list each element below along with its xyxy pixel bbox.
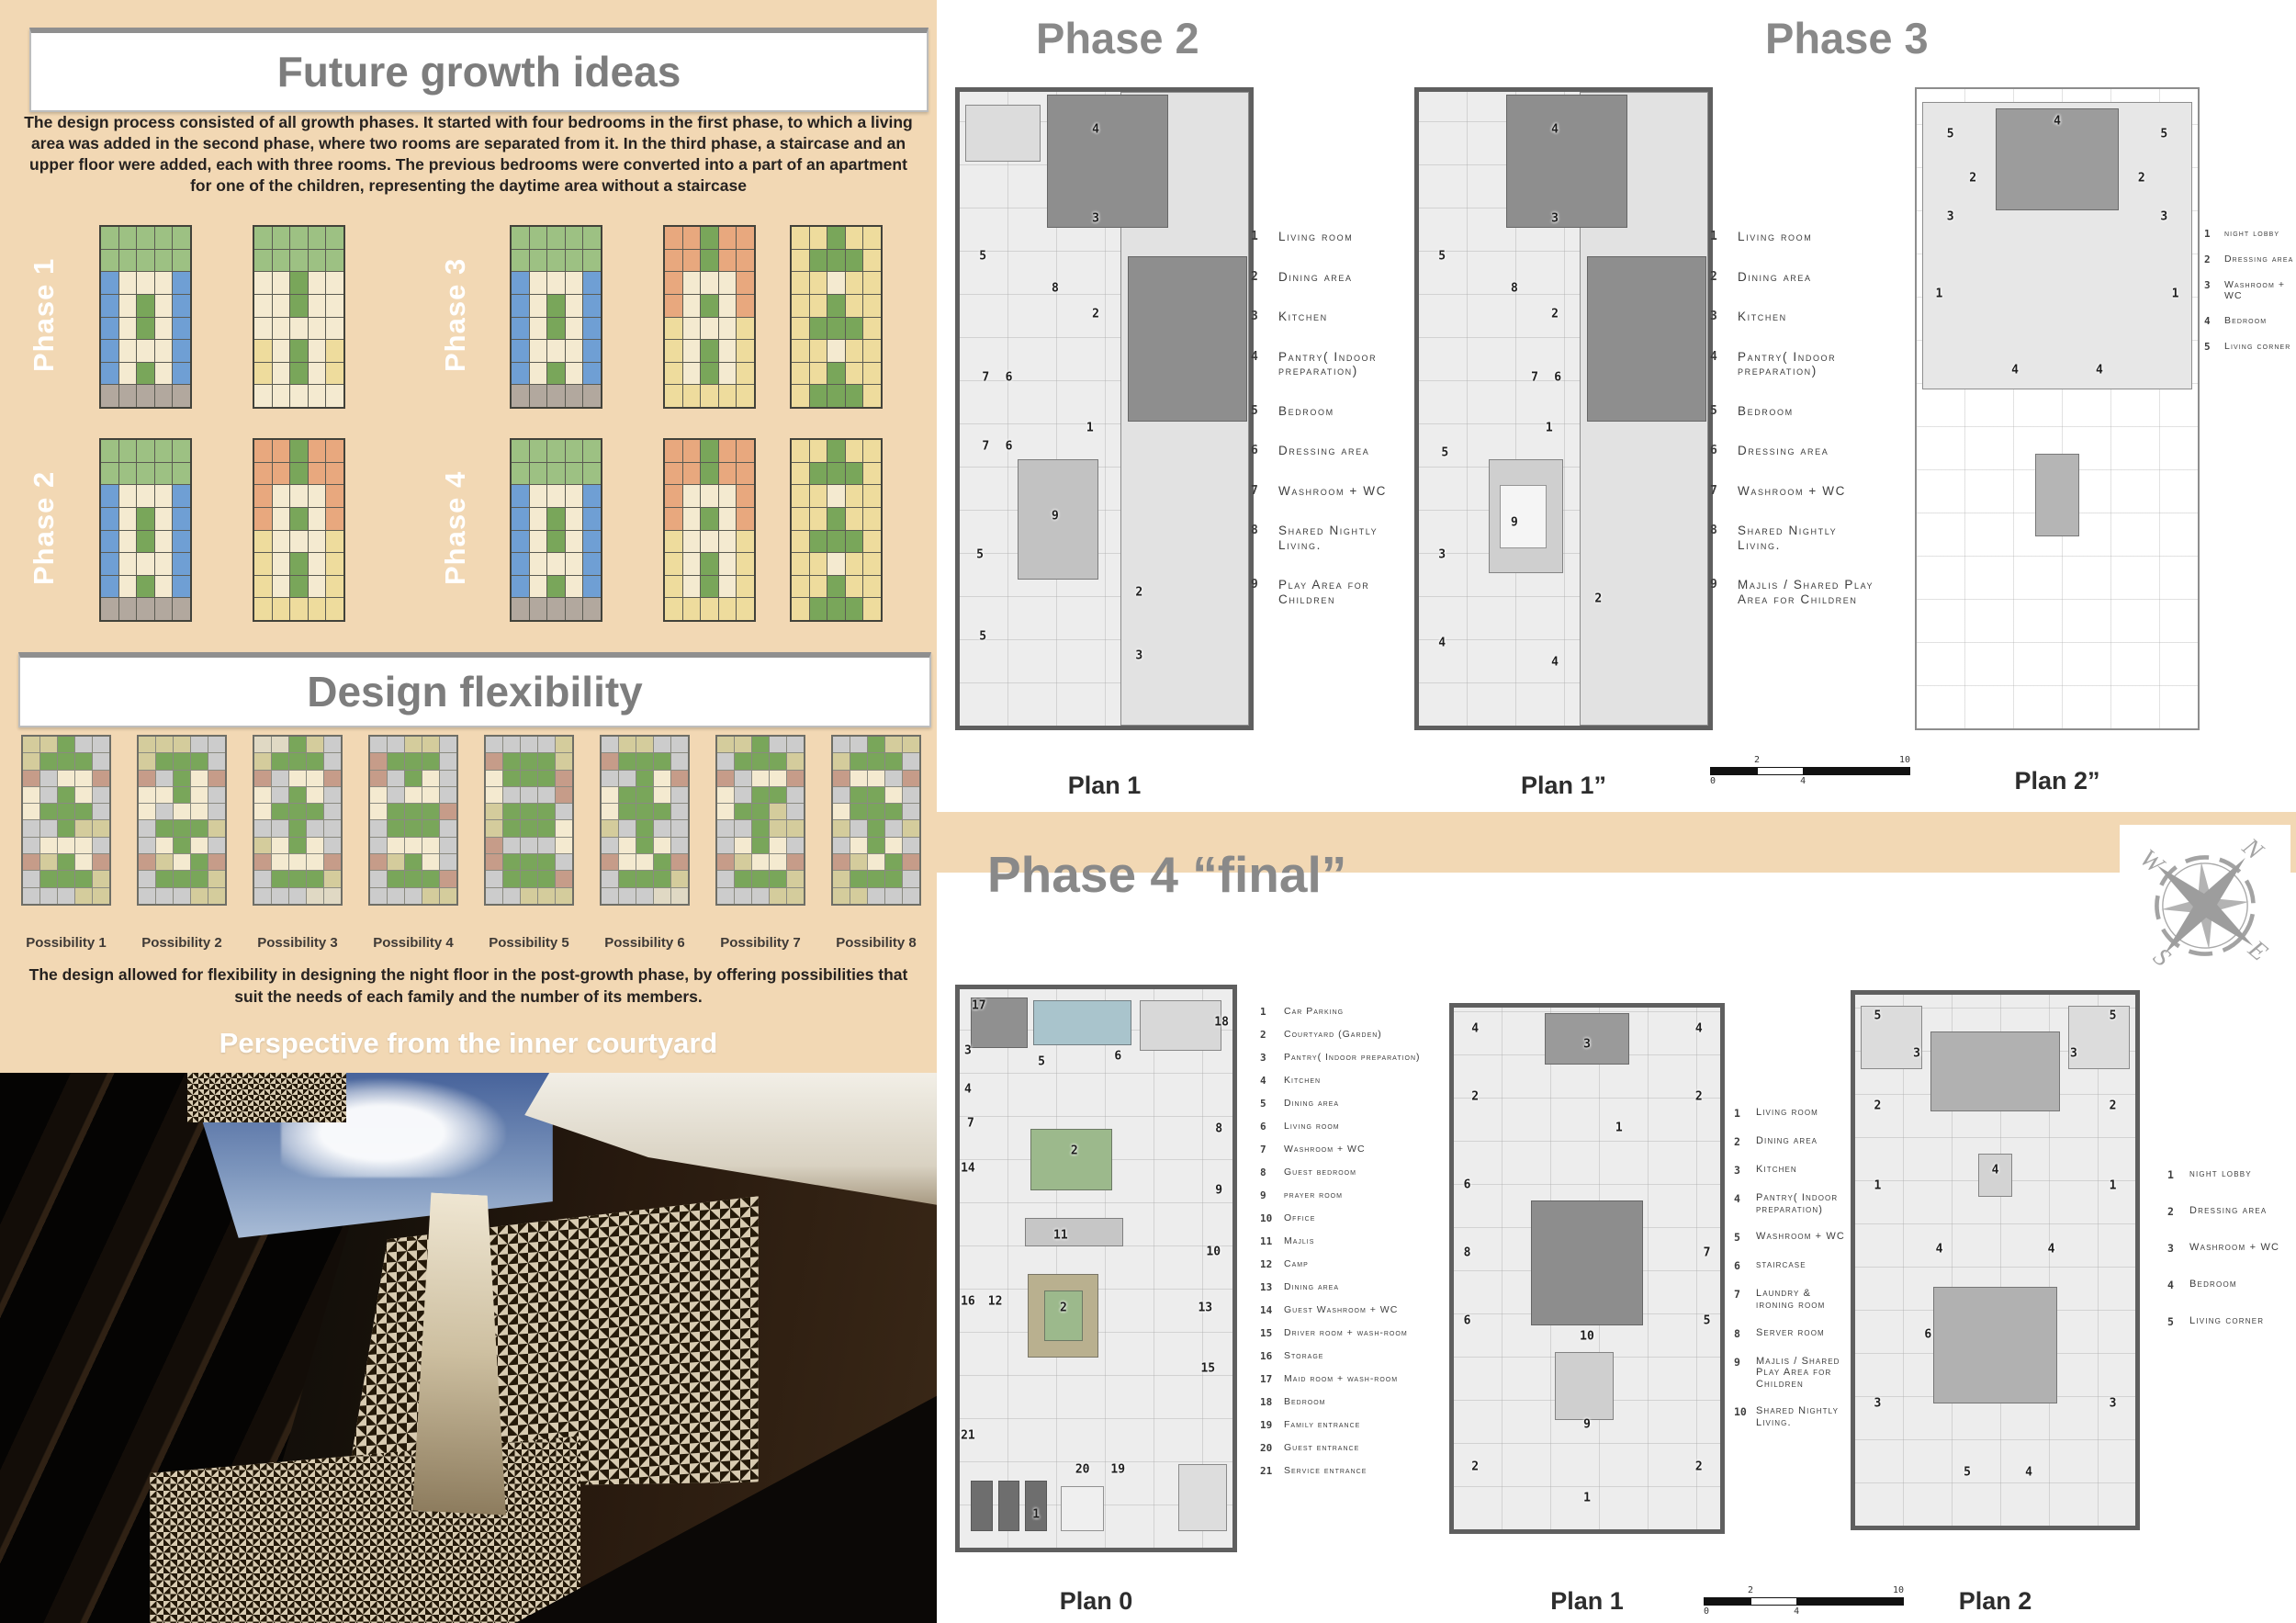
diagram-cell xyxy=(701,440,718,462)
diagram-cell xyxy=(254,888,271,904)
diagram-cell xyxy=(671,804,688,819)
diagram-cell xyxy=(885,804,902,819)
diagram-cell xyxy=(521,753,537,769)
diagram-cell xyxy=(326,318,343,340)
plan-block xyxy=(1044,1291,1083,1341)
diagram-cell xyxy=(827,485,845,507)
diagram-cell xyxy=(566,463,583,485)
diagram-cell xyxy=(309,363,326,385)
diagram-cell xyxy=(846,485,863,507)
mashrabiya-screen-top xyxy=(187,1073,346,1122)
legend-label: Bedroom xyxy=(1738,404,1794,419)
diagram-cell xyxy=(254,753,271,769)
diagram-cell xyxy=(155,227,173,249)
legend-label: Washroom + WC xyxy=(1738,484,1846,499)
diagram-cell xyxy=(191,838,208,853)
plan-block xyxy=(1933,1287,2056,1403)
diagram-cell xyxy=(173,508,190,530)
diagram-cell xyxy=(119,363,137,385)
floor-plan-phase4-plan0: 1731865471428911101612213152120191 xyxy=(955,985,1237,1552)
diagram-cell xyxy=(370,888,387,904)
diagram-cell xyxy=(309,227,326,249)
legend-label: Service entrance xyxy=(1284,1465,1367,1476)
legend-label: Washroom + WC xyxy=(1756,1231,1845,1243)
diagram-cell xyxy=(324,787,341,803)
diagram-cell xyxy=(717,871,734,886)
diagram-cell xyxy=(683,295,701,317)
diagram-cell xyxy=(792,508,809,530)
diagram-cell xyxy=(173,295,190,317)
plan-block xyxy=(1025,1481,1047,1531)
diagram-cell xyxy=(273,227,290,249)
diagram-cell xyxy=(636,737,653,752)
diagram-cell xyxy=(868,737,884,752)
legend-number: 1 xyxy=(1710,230,1738,243)
diagram-cell xyxy=(583,295,601,317)
possibility-4: Possibility 4 xyxy=(367,735,459,951)
diagram-cell xyxy=(846,463,863,485)
diagram-cell xyxy=(191,820,208,836)
diagram-cell xyxy=(530,463,547,485)
diagram-cell xyxy=(717,737,734,752)
phase-2-label: Phase 2 xyxy=(17,438,72,618)
diagram-cell xyxy=(93,753,109,769)
diagram-cell xyxy=(422,804,439,819)
diagram-cell xyxy=(101,272,118,294)
diagram-cell xyxy=(486,871,502,886)
legend-label: Dining area xyxy=(1756,1135,1818,1147)
diagram-cell xyxy=(101,227,118,249)
diagram-cell xyxy=(290,272,308,294)
diagram-cell xyxy=(119,272,137,294)
diagram-cell xyxy=(254,272,272,294)
diagram-cell xyxy=(850,787,867,803)
room-number: 5 xyxy=(1947,127,1954,141)
diagram-cell xyxy=(752,854,769,870)
diagram-cell xyxy=(40,871,57,886)
diagram-cell xyxy=(583,553,601,575)
diagram-cell xyxy=(752,888,769,904)
diagram-cell xyxy=(289,838,306,853)
diagram-cell xyxy=(307,838,323,853)
plan-block xyxy=(1500,485,1546,548)
diagram-cell xyxy=(602,888,618,904)
room-number: 3 xyxy=(1874,1397,1881,1411)
diagram-cell xyxy=(752,838,769,853)
legend-item: 3Washroom + WC xyxy=(2167,1242,2287,1255)
diagram-cell xyxy=(422,787,439,803)
diagram-cell xyxy=(810,340,827,362)
legend-label: Bedroom xyxy=(2224,315,2267,326)
diagram-cell xyxy=(717,753,734,769)
diagram-cell xyxy=(547,385,565,407)
scale-bar-top: 2 10 0 4 xyxy=(1710,755,1910,786)
room-number: 9 xyxy=(1215,1183,1222,1197)
diagram-cell xyxy=(583,508,601,530)
diagram-cell xyxy=(119,463,137,485)
diagram-cell xyxy=(792,440,809,462)
diagram-cell xyxy=(40,804,57,819)
diagram-cell xyxy=(440,787,456,803)
legend-item: 7Washroom + WC xyxy=(1251,484,1414,499)
diagram-cell xyxy=(101,385,118,407)
legend-label: Laundry & ironing room xyxy=(1756,1288,1846,1311)
diagram-cell xyxy=(810,531,827,553)
plan-block xyxy=(1930,1031,2059,1111)
diagram-cell xyxy=(137,463,154,485)
legend-label: Dressing area xyxy=(2189,1205,2267,1217)
diagram-cell xyxy=(846,227,863,249)
phase-4-diagram-2 xyxy=(663,438,756,622)
room-number: 10 xyxy=(1580,1329,1594,1343)
phase-4-heading: Phase 4 “final” xyxy=(987,845,1346,904)
legend-item: 9Play Area for Children xyxy=(1251,578,1414,606)
diagram-cell xyxy=(770,820,786,836)
phase3-night-legend: 1night lobby2Dressing area3Washroom + WC… xyxy=(2204,228,2294,366)
diagram-cell xyxy=(863,598,881,620)
diagram-cell xyxy=(75,804,92,819)
diagram-cell xyxy=(58,871,74,886)
diagram-cell xyxy=(792,272,809,294)
plan-block xyxy=(1061,1486,1105,1531)
legend-label: Shared Nightly Living. xyxy=(1756,1405,1846,1428)
diagram-cell xyxy=(792,250,809,272)
room-number: 3 xyxy=(2160,210,2167,224)
room-number: 4 xyxy=(1471,1021,1479,1035)
diagram-cell xyxy=(521,737,537,752)
legend-label: Washroom + WC xyxy=(2224,279,2294,301)
legend-item: 7Washroom + WC xyxy=(1710,484,1875,499)
diagram-cell xyxy=(254,340,272,362)
diagram-cell xyxy=(665,508,682,530)
diagram-cell xyxy=(503,804,520,819)
room-number: 3 xyxy=(1135,649,1142,663)
diagram-cell xyxy=(846,553,863,575)
diagram-cell xyxy=(173,318,190,340)
diagram-cell xyxy=(701,227,718,249)
legend-item: 2Courtyard (Garden) xyxy=(1260,1029,1436,1041)
diagram-cell xyxy=(665,576,682,598)
legend-label: Play Area for Children xyxy=(1278,578,1414,606)
legend-label: Dressing area xyxy=(1738,444,1829,458)
diagram-cell xyxy=(289,871,306,886)
room-number: 2 xyxy=(1471,1460,1479,1473)
diagram-cell xyxy=(137,576,154,598)
room-number: 4 xyxy=(1092,123,1099,137)
diagram-cell xyxy=(405,771,422,786)
diagram-cell xyxy=(422,838,439,853)
diagram-cell xyxy=(93,888,109,904)
diagram-cell xyxy=(827,598,845,620)
room-number: 7 xyxy=(967,1116,974,1130)
phase4-plan1-legend: 1Living room2Dining area3Kitchen4Pantry(… xyxy=(1734,1107,1846,1445)
diagram-cell xyxy=(155,463,173,485)
diagram-cell xyxy=(602,737,618,752)
diagram-cell xyxy=(654,804,670,819)
diagram-cell xyxy=(40,854,57,870)
room-number: 2 xyxy=(2138,172,2145,186)
diagram-cell xyxy=(583,272,601,294)
diagram-cell xyxy=(137,385,154,407)
diagram-cell xyxy=(530,272,547,294)
legend-item: 8Server room xyxy=(1734,1327,1846,1340)
diagram-cell xyxy=(309,531,326,553)
diagram-cell xyxy=(75,838,92,853)
phase4-plan0-legend: 1Car Parking2Courtyard (Garden)3Pantry( … xyxy=(1260,1006,1436,1488)
diagram-cell xyxy=(440,753,456,769)
room-number: 15 xyxy=(1200,1362,1215,1376)
room-number: 3 xyxy=(1551,212,1559,226)
diagram-cell xyxy=(324,804,341,819)
diagram-cell xyxy=(566,553,583,575)
diagram-cell xyxy=(850,871,867,886)
diagram-cell xyxy=(521,854,537,870)
diagram-cell xyxy=(254,385,272,407)
diagram-cell xyxy=(863,485,881,507)
diagram-cell xyxy=(566,227,583,249)
room-number: 4 xyxy=(1438,637,1446,650)
legend-item: 1Car Parking xyxy=(1260,1006,1436,1018)
diagram-cell xyxy=(290,318,308,340)
legend-item: 2Dressing area xyxy=(2167,1205,2287,1218)
diagram-cell xyxy=(717,820,734,836)
room-number: 5 xyxy=(1704,1313,1711,1327)
legend-label: Kitchen xyxy=(1756,1164,1797,1176)
diagram-cell xyxy=(566,250,583,272)
diagram-cell xyxy=(440,820,456,836)
diagram-cell xyxy=(155,485,173,507)
diagram-cell xyxy=(273,318,290,340)
diagram-cell xyxy=(254,787,271,803)
diagram-cell xyxy=(602,787,618,803)
diagram-cell xyxy=(636,888,653,904)
diagram-cell xyxy=(792,576,809,598)
diagram-cell xyxy=(654,888,670,904)
diagram-cell xyxy=(566,576,583,598)
plan-block xyxy=(965,105,1041,162)
floor-plan-phase4-plan2: 5533221144463354 xyxy=(1851,990,2140,1530)
diagram-cell xyxy=(719,553,737,575)
diagram-cell xyxy=(155,598,173,620)
room-number: 5 xyxy=(2160,127,2167,141)
diagram-cell xyxy=(208,820,225,836)
legend-number: 9 xyxy=(1734,1356,1756,1369)
diagram-cell xyxy=(846,385,863,407)
diagram-cell xyxy=(787,771,804,786)
legend-number: 2 xyxy=(1710,270,1738,284)
possibility-1-grid xyxy=(21,735,111,906)
diagram-cell xyxy=(683,553,701,575)
legend-number: 21 xyxy=(1260,1465,1284,1477)
diagram-cell xyxy=(512,485,529,507)
diagram-cell xyxy=(486,820,502,836)
diagram-cell xyxy=(583,363,601,385)
diagram-cell xyxy=(665,553,682,575)
diagram-cell xyxy=(273,340,290,362)
legend-item: 21Service entrance xyxy=(1260,1465,1436,1477)
diagram-cell xyxy=(701,553,718,575)
legend-number: 5 xyxy=(1260,1098,1284,1110)
diagram-cell xyxy=(309,508,326,530)
diagram-cell xyxy=(370,838,387,853)
diagram-cell xyxy=(137,485,154,507)
diagram-cell xyxy=(547,598,565,620)
diagram-cell xyxy=(602,804,618,819)
legend-item: 8Shared Nightly Living. xyxy=(1710,524,1875,552)
diagram-cell xyxy=(58,753,74,769)
diagram-cell xyxy=(101,463,118,485)
diagram-cell xyxy=(155,508,173,530)
diagram-cell xyxy=(75,787,92,803)
compass-n: N xyxy=(2237,831,2270,865)
legend-number: 4 xyxy=(1710,350,1738,364)
diagram-cell xyxy=(173,272,190,294)
legend-item: 6Dressing area xyxy=(1251,444,1414,458)
diagram-cell xyxy=(719,440,737,462)
diagram-cell xyxy=(547,272,565,294)
diagram-cell xyxy=(671,854,688,870)
diagram-cell xyxy=(254,250,272,272)
diagram-cell xyxy=(422,753,439,769)
diagram-cell xyxy=(208,787,225,803)
diagram-cell xyxy=(173,440,190,462)
diagram-cell xyxy=(665,340,682,362)
room-number: 1 xyxy=(1874,1179,1881,1193)
plan-block xyxy=(1030,1129,1112,1190)
scale-tick-10: 10 xyxy=(1899,755,1910,765)
diagram-cell xyxy=(671,871,688,886)
diagram-cell xyxy=(326,363,343,385)
diagram-cell xyxy=(787,871,804,886)
room-number: 5 xyxy=(979,630,986,644)
legend-number: 20 xyxy=(1260,1442,1284,1454)
plan-block xyxy=(1555,1352,1614,1420)
possibility-6: Possibility 6 xyxy=(599,735,691,951)
legend-number: 16 xyxy=(1260,1350,1284,1362)
diagram-cell xyxy=(405,871,422,886)
diagram-cell xyxy=(583,318,601,340)
diagram-cell xyxy=(119,385,137,407)
diagram-cell xyxy=(530,385,547,407)
diagram-cell xyxy=(289,737,306,752)
legend-number: 9 xyxy=(1710,578,1738,592)
legend-item: 1night lobby xyxy=(2167,1168,2287,1181)
diagram-cell xyxy=(683,440,701,462)
diagram-cell xyxy=(273,272,290,294)
diagram-cell xyxy=(530,250,547,272)
diagram-cell xyxy=(119,598,137,620)
diagram-cell xyxy=(326,340,343,362)
diagram-cell xyxy=(440,737,456,752)
compass-icon: N E S W xyxy=(2124,829,2286,982)
diagram-cell xyxy=(792,318,809,340)
diagram-cell xyxy=(512,440,529,462)
possibility-5-caption: Possibility 5 xyxy=(483,935,575,951)
diagram-cell xyxy=(273,363,290,385)
diagram-cell xyxy=(23,804,39,819)
plan-block xyxy=(2035,454,2080,536)
legend-label: Guest entrance xyxy=(1284,1442,1359,1453)
diagram-cell xyxy=(290,250,308,272)
diagram-cell xyxy=(903,820,919,836)
diagram-cell xyxy=(530,340,547,362)
diagram-cell xyxy=(173,227,190,249)
diagram-cell xyxy=(101,250,118,272)
room-number: 8 xyxy=(1511,281,1518,295)
legend-number: 4 xyxy=(1260,1075,1284,1087)
diagram-cell xyxy=(683,340,701,362)
room-number: 2 xyxy=(1092,307,1099,321)
diagram-cell xyxy=(324,737,341,752)
diagram-cell xyxy=(868,838,884,853)
legend-number: 8 xyxy=(1734,1327,1756,1340)
diagram-cell xyxy=(75,820,92,836)
diagram-cell xyxy=(850,854,867,870)
room-number: 3 xyxy=(2070,1046,2077,1060)
legend-number: 6 xyxy=(1710,444,1738,457)
phase-3-diagram-2 xyxy=(663,225,756,409)
diagram-cell xyxy=(547,553,565,575)
room-number: 2 xyxy=(1969,172,1976,186)
diagram-cell xyxy=(289,771,306,786)
diagram-cell xyxy=(23,820,39,836)
legend-label: Dining area xyxy=(1284,1098,1339,1109)
legend-label: Living room xyxy=(1278,230,1353,244)
plan-block xyxy=(1531,1200,1643,1325)
legend-number: 5 xyxy=(1734,1231,1756,1244)
legend-item: 2Dining area xyxy=(1251,270,1414,285)
legend-item: 4Kitchen xyxy=(1260,1075,1436,1087)
diagram-cell xyxy=(101,553,118,575)
diagram-cell xyxy=(717,771,734,786)
diagram-cell xyxy=(440,854,456,870)
legend-label: Kitchen xyxy=(1278,310,1328,324)
diagram-cell xyxy=(863,250,881,272)
diagram-cell xyxy=(173,363,190,385)
diagram-cell xyxy=(547,318,565,340)
legend-number: 3 xyxy=(2167,1242,2189,1255)
diagram-cell xyxy=(735,787,751,803)
courtyard-photo xyxy=(0,1073,937,1623)
possibility-6-grid xyxy=(600,735,690,906)
diagram-cell xyxy=(512,250,529,272)
diagram-cell xyxy=(737,463,754,485)
diagram-cell xyxy=(683,531,701,553)
possibility-8: Possibility 8 xyxy=(830,735,922,951)
diagram-cell xyxy=(119,340,137,362)
phase-3-label: Phase 3 xyxy=(428,225,483,405)
diagram-cell xyxy=(290,531,308,553)
diagram-cell xyxy=(787,787,804,803)
legend-item: 5Bedroom xyxy=(1251,404,1414,419)
legend-item: 1Living room xyxy=(1734,1107,1846,1120)
legend-number: 9 xyxy=(1251,578,1278,592)
diagram-cell xyxy=(903,854,919,870)
diagram-cell xyxy=(885,888,902,904)
diagram-cell xyxy=(827,553,845,575)
diagram-cell xyxy=(273,508,290,530)
diagram-cell xyxy=(254,227,272,249)
diagram-cell xyxy=(846,250,863,272)
plan-block xyxy=(1033,1000,1131,1045)
legend-label: Bedroom xyxy=(2189,1279,2237,1291)
diagram-cell xyxy=(512,576,529,598)
legend-label: Living room xyxy=(1284,1121,1340,1132)
legend-item: 4Pantry( Indoor preparation) xyxy=(1734,1192,1846,1215)
legend-number: 1 xyxy=(1260,1006,1284,1018)
diagram-cell xyxy=(810,485,827,507)
diagram-cell xyxy=(583,485,601,507)
